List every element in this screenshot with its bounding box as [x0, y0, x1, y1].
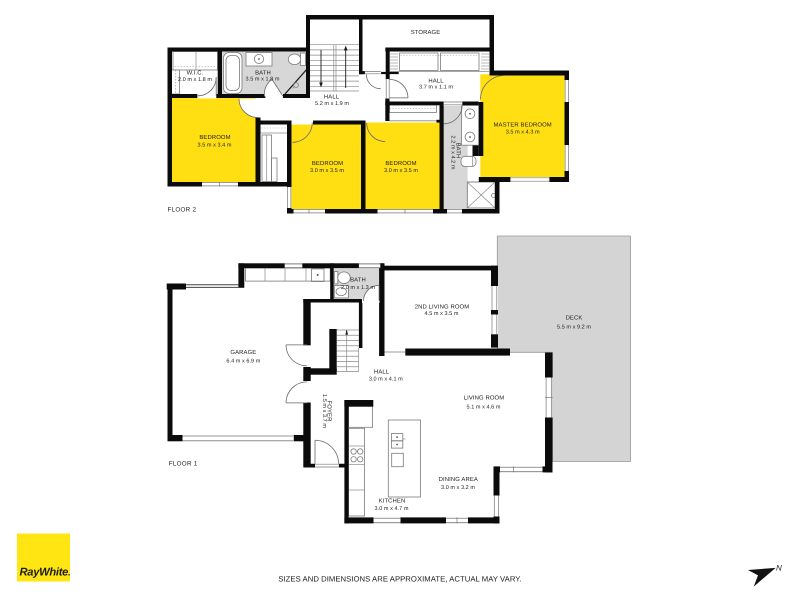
svg-text:FLOOR 1: FLOOR 1 [169, 461, 198, 468]
svg-text:3.0 m x 4.1 m: 3.0 m x 4.1 m [369, 377, 403, 383]
svg-text:BEDROOM: BEDROOM [385, 160, 416, 167]
svg-text:HALL: HALL [324, 94, 340, 101]
svg-text:4.5 m x 3.5 m: 4.5 m x 3.5 m [425, 311, 459, 317]
svg-text:5.1 m x 4.6 m: 5.1 m x 4.6 m [467, 405, 501, 411]
svg-text:N: N [776, 564, 782, 573]
svg-text:BATH: BATH [255, 69, 271, 76]
svg-text:LIVING ROOM: LIVING ROOM [464, 395, 505, 402]
svg-text:2.0 m x 1.3 m: 2.0 m x 1.3 m [341, 285, 375, 291]
svg-text:6.4 m x 6.9 m: 6.4 m x 6.9 m [226, 359, 260, 365]
svg-text:3.5 m x 1.8 m: 3.5 m x 1.8 m [246, 77, 280, 83]
svg-text:3.7 m x 1.1 m: 3.7 m x 1.1 m [419, 85, 453, 91]
svg-text:2ND LIVING ROOM: 2ND LIVING ROOM [415, 303, 470, 310]
svg-text:5.2 m x 1.9 m: 5.2 m x 1.9 m [315, 101, 349, 107]
svg-text:2.2 m x 4.2 m: 2.2 m x 4.2 m [450, 136, 456, 170]
svg-text:2.0 m x 1.8 m: 2.0 m x 1.8 m [178, 77, 212, 83]
svg-text:BATH: BATH [350, 277, 366, 284]
svg-text:HALL: HALL [428, 78, 444, 85]
svg-text:3.0 m x 3.5 m: 3.0 m x 3.5 m [384, 168, 418, 174]
svg-text:W.I.C.: W.I.C. [187, 69, 204, 76]
svg-text:1.5 m x 3.7 m: 1.5 m x 3.7 m [321, 394, 327, 428]
svg-text:3.0 m x 3.2 m: 3.0 m x 3.2 m [441, 485, 475, 491]
svg-text:MASTER BEDROOM: MASTER BEDROOM [494, 122, 552, 129]
svg-text:DINING AREA: DINING AREA [439, 476, 478, 483]
svg-text:SIZES AND DIMENSIONS ARE APPRO: SIZES AND DIMENSIONS ARE APPROXIMATE, AC… [278, 575, 521, 584]
svg-text:BEDROOM: BEDROOM [199, 134, 230, 141]
svg-text:HALL: HALL [374, 368, 390, 375]
svg-text:3.0 m x 4.7 m: 3.0 m x 4.7 m [375, 506, 409, 512]
svg-text:FLOOR 2: FLOOR 2 [168, 207, 197, 214]
svg-text:BEDROOM: BEDROOM [312, 160, 343, 167]
svg-text:STORAGE: STORAGE [411, 29, 441, 36]
svg-text:5.5 m x 9.2 m: 5.5 m x 9.2 m [557, 325, 591, 331]
svg-text:GARAGE: GARAGE [230, 349, 256, 356]
svg-text:DECK: DECK [566, 315, 583, 322]
svg-text:3.5 m x 4.3 m: 3.5 m x 4.3 m [506, 130, 540, 136]
svg-text:3.5 m x 3.4 m: 3.5 m x 3.4 m [198, 143, 232, 149]
svg-text:3.0 m x 3.5 m: 3.0 m x 3.5 m [310, 168, 344, 174]
svg-text:KITCHEN: KITCHEN [379, 498, 406, 505]
svg-text:RayWhite.: RayWhite. [20, 567, 71, 579]
